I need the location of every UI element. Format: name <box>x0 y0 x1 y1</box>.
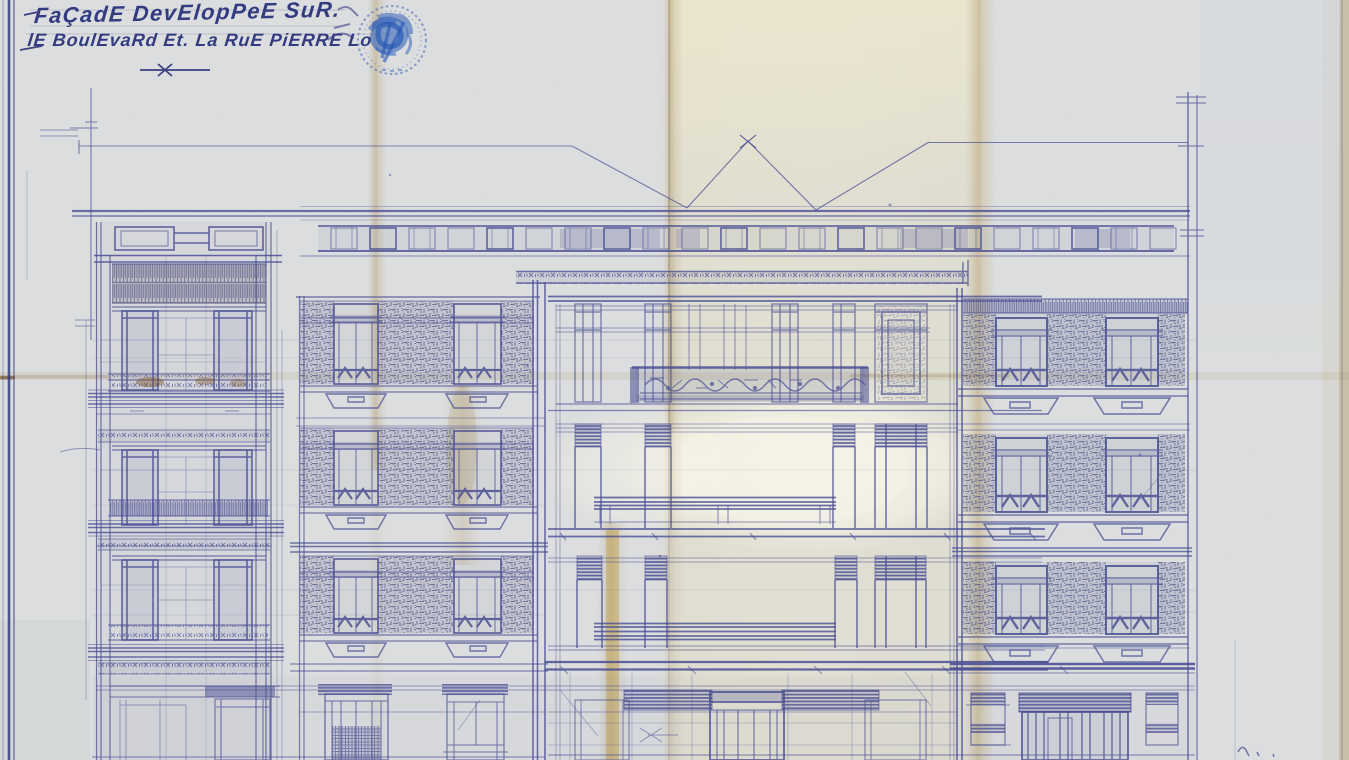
svg-text:lE BoulEvaRd Et. La RuE PiERRE: lE BoulEvaRd Et. La RuE PiERRE Lo <box>27 30 374 50</box>
